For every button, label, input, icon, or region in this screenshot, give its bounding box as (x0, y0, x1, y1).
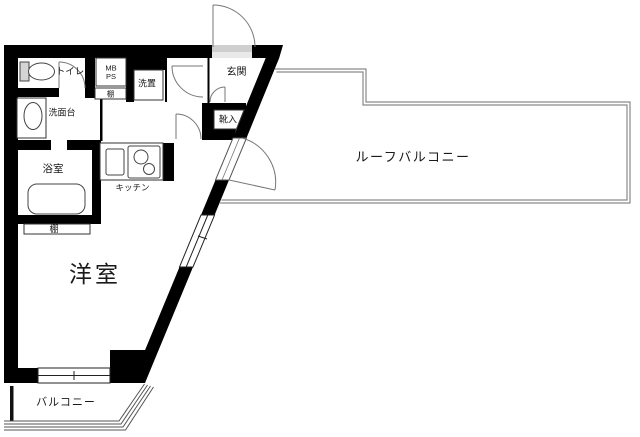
wall-genkan-bottom (202, 103, 246, 110)
kitchen-sink-icon (106, 149, 124, 175)
bathtub-icon (28, 184, 85, 214)
wall-bath-top-right (67, 140, 101, 150)
entrance-step-inner (212, 52, 252, 58)
wall-kitchen-right (163, 143, 174, 181)
shelf-bottom-label: 棚 (49, 223, 58, 234)
kitchen-label: キッチン (115, 183, 149, 193)
wall-laundry-top (134, 58, 165, 70)
wall-bath-bottom (18, 215, 101, 224)
laundry-label: 洗置 (138, 78, 156, 89)
wall-top-left (4, 45, 212, 58)
floorplan: トイレ MB PS 棚 洗置 洗面台 浴室 キッチン 玄関 靴入 洋室 棚 ルー… (0, 0, 640, 437)
stove-burner-small-icon (144, 164, 155, 175)
bathroom-label: 浴室 (43, 162, 64, 175)
stove-burner-large-icon (134, 150, 148, 164)
western-room-label: 洋室 (69, 261, 121, 287)
toilet-tank-icon (20, 62, 29, 81)
entrance-threshold (212, 45, 252, 58)
roof-balcony-label: ルーフバルコニー (356, 150, 471, 165)
wall-toilet-mbps (85, 58, 95, 98)
wall-washroom-line (100, 98, 103, 141)
washstand-basin-icon (24, 103, 42, 130)
balcony-label: バルコニー (36, 396, 96, 409)
toilet-bowl-icon (29, 63, 55, 80)
wall-bath-top-left (18, 140, 51, 150)
wall-vestibule-line (165, 58, 167, 102)
ps-label: PS (106, 72, 116, 81)
wall-genkan-left (202, 110, 214, 140)
wall-left (4, 45, 18, 383)
toilet-label: トイレ (56, 67, 85, 78)
shelf-top-label: 棚 (107, 89, 115, 99)
wall-genkan-line (208, 58, 210, 103)
wall-toilet-divider (18, 88, 59, 97)
entrance-label: 玄関 (227, 65, 247, 78)
floorplan-canvas: トイレ MB PS 棚 洗置 洗面台 浴室 キッチン 玄関 靴入 洋室 棚 ルー… (0, 0, 640, 437)
wall-mbps-right (126, 58, 134, 102)
wall-bottom-left (4, 368, 38, 383)
wall-top-right (252, 45, 283, 58)
entrance-step-outer (212, 45, 252, 52)
washstand-label: 洗面台 (48, 107, 75, 118)
balcony-left-bar (10, 386, 14, 421)
shoe-box-label: 靴入 (219, 114, 237, 125)
